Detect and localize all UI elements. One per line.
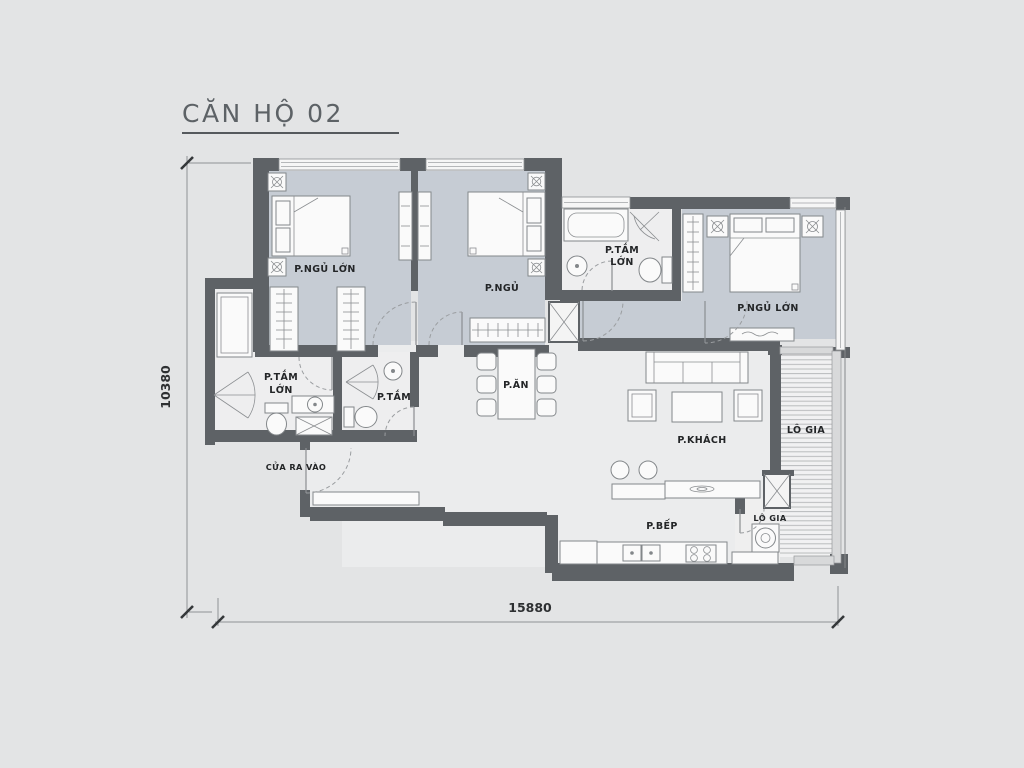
wardrobe <box>683 214 703 292</box>
page-title: CĂN HỘ 02 <box>182 98 344 128</box>
loggia-main-floor <box>780 353 832 557</box>
vanity-sink <box>292 396 334 413</box>
bed-2 <box>468 192 545 256</box>
bedroom1-window <box>279 159 400 170</box>
nightstand-lamp <box>528 173 545 190</box>
nightstand-lamp <box>268 258 286 276</box>
kitchen-bar <box>612 481 760 499</box>
room-label-entrance: CỬA RA VÀO <box>266 460 327 472</box>
room-label-bath-master-2: LỚN <box>269 384 293 396</box>
shaft-box <box>764 474 790 508</box>
toilet <box>639 257 672 283</box>
tv-cabinet <box>730 328 794 341</box>
wardrobe <box>470 318 545 342</box>
room-label-bedroom1: P.NGỦ LỚN <box>294 262 356 275</box>
wardrobe <box>270 287 298 351</box>
nightstand-lamp <box>528 259 545 276</box>
toilet <box>344 407 377 428</box>
nightstand-lamp <box>707 216 728 237</box>
room-label-bath-top-1: P.TẮM <box>605 243 639 256</box>
bed-1 <box>272 196 350 256</box>
room-label-dining: P.ĂN <box>503 379 529 391</box>
nightstand-lamp <box>802 216 823 237</box>
bedroom3-north-window <box>790 198 836 208</box>
armchair <box>734 390 762 421</box>
wardrobe <box>337 287 365 351</box>
floor-plan-canvas: CĂN HỘ 02 <box>0 0 1024 768</box>
sink-round <box>384 362 402 380</box>
room-label-bath-top-2: LỚN <box>610 256 634 268</box>
armchair <box>628 390 656 421</box>
dimension-label-height: 10380 <box>158 365 173 409</box>
room-label-bath-small: P.TẮM <box>377 390 411 403</box>
room-label-loggia-small: LÔ GIA <box>753 512 787 523</box>
room-label-loggia-main: LÔ GIA <box>787 424 825 436</box>
coffee-table <box>672 392 722 422</box>
floor-plan-page: CĂN HỘ 02 <box>0 0 1024 768</box>
tall-cabinet <box>217 293 252 357</box>
entry-cabinet <box>313 492 419 505</box>
kitchen-counter <box>560 541 727 564</box>
sink-round <box>567 256 587 276</box>
room-label-bedroom3: P.NGỦ LỚN <box>737 301 799 314</box>
dimension-label-width: 15880 <box>508 600 552 615</box>
washing-machine <box>752 524 779 552</box>
loggia-shelf <box>732 552 778 564</box>
room-label-living: P.KHÁCH <box>677 434 726 446</box>
toilet <box>265 403 288 435</box>
sofa <box>646 352 748 383</box>
bedroom3-east-window <box>836 210 845 350</box>
cabinet-x <box>296 417 332 435</box>
nightstand-lamp <box>268 173 286 191</box>
stove <box>686 545 716 562</box>
bath-top-window <box>562 197 630 208</box>
shaft-box <box>549 302 579 342</box>
bathtub <box>564 209 628 241</box>
room-label-bedroom2: P.NGỦ <box>485 281 519 294</box>
room-label-kitchen: P.BẾP <box>646 519 678 532</box>
bed-3 <box>730 214 800 292</box>
bedroom2-window <box>426 159 524 170</box>
room-label-bath-master-1: P.TẮM <box>264 370 298 383</box>
